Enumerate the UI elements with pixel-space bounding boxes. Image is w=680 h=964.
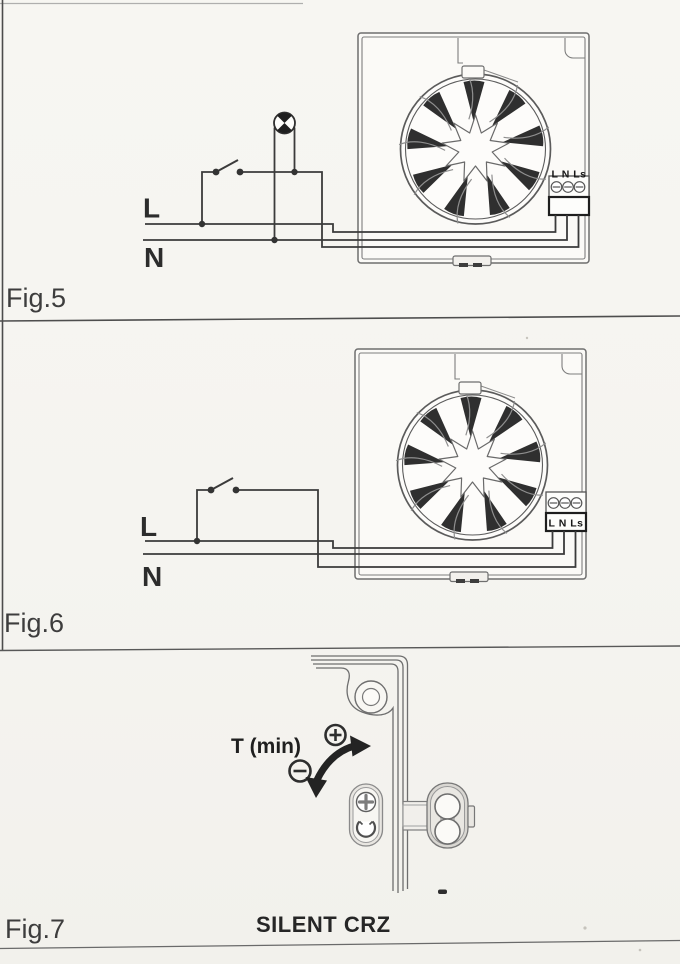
phillips-screw-icon <box>357 793 376 812</box>
fig6-caption: Fig.6 <box>4 608 64 638</box>
fig6-neutral-label: N <box>142 561 162 592</box>
switch-feed-wire <box>197 490 211 541</box>
fig5-live-label: L <box>143 193 160 224</box>
manual-page: L N L N Ls Fig.5 L N L N Ls Fig.6 <box>0 0 680 964</box>
panel-divider-1 <box>0 316 680 321</box>
switch-blade <box>216 160 238 172</box>
scan-dash-mark <box>438 890 447 895</box>
lamp-icon <box>274 113 295 134</box>
screw-boss <box>355 681 387 713</box>
fig7-diagram: T (min) SILENT CRZ Fig.7 <box>5 656 475 944</box>
fig5-terminal-label: L N Ls <box>552 169 587 181</box>
timer-trimmer <box>350 784 383 846</box>
timer-label: T (min) <box>231 735 301 758</box>
fig6-terminal-label: L N Ls <box>549 518 584 530</box>
switch-feed-wire <box>202 172 216 224</box>
plus-icon <box>326 725 346 745</box>
fig6-live-label: L <box>140 511 157 542</box>
fig5-caption: Fig.5 <box>6 283 66 313</box>
keyed-hole-icon <box>357 822 375 837</box>
fig5-junction-dots <box>199 169 298 244</box>
fig6-junction-dots <box>194 487 240 545</box>
fig5-diagram: L N L N Ls Fig.5 <box>6 33 589 313</box>
fig5-neutral-label: N <box>144 242 164 273</box>
switch-blade <box>211 478 233 490</box>
fig6-diagram: L N L N Ls Fig.6 <box>4 349 586 638</box>
figures-canvas: L N L N Ls Fig.5 L N L N Ls Fig.6 <box>0 0 680 964</box>
panel-divider-2 <box>0 646 680 651</box>
panel-divider-3 <box>0 941 680 949</box>
fig7-caption: Fig.7 <box>5 914 65 944</box>
product-label: SILENT CRZ <box>256 912 391 937</box>
connector-block <box>403 783 475 848</box>
